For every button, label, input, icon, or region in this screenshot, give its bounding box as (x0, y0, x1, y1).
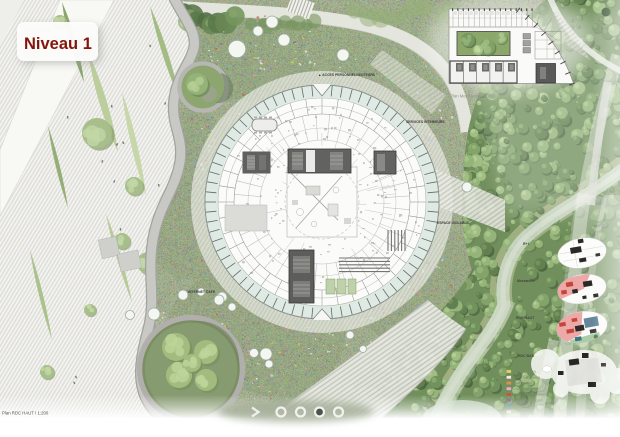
svg-text:Plan RDC HAUT I 1:200: Plan RDC HAUT I 1:200 (2, 411, 49, 416)
svg-text:Niveau 1: Niveau 1 (24, 35, 92, 53)
